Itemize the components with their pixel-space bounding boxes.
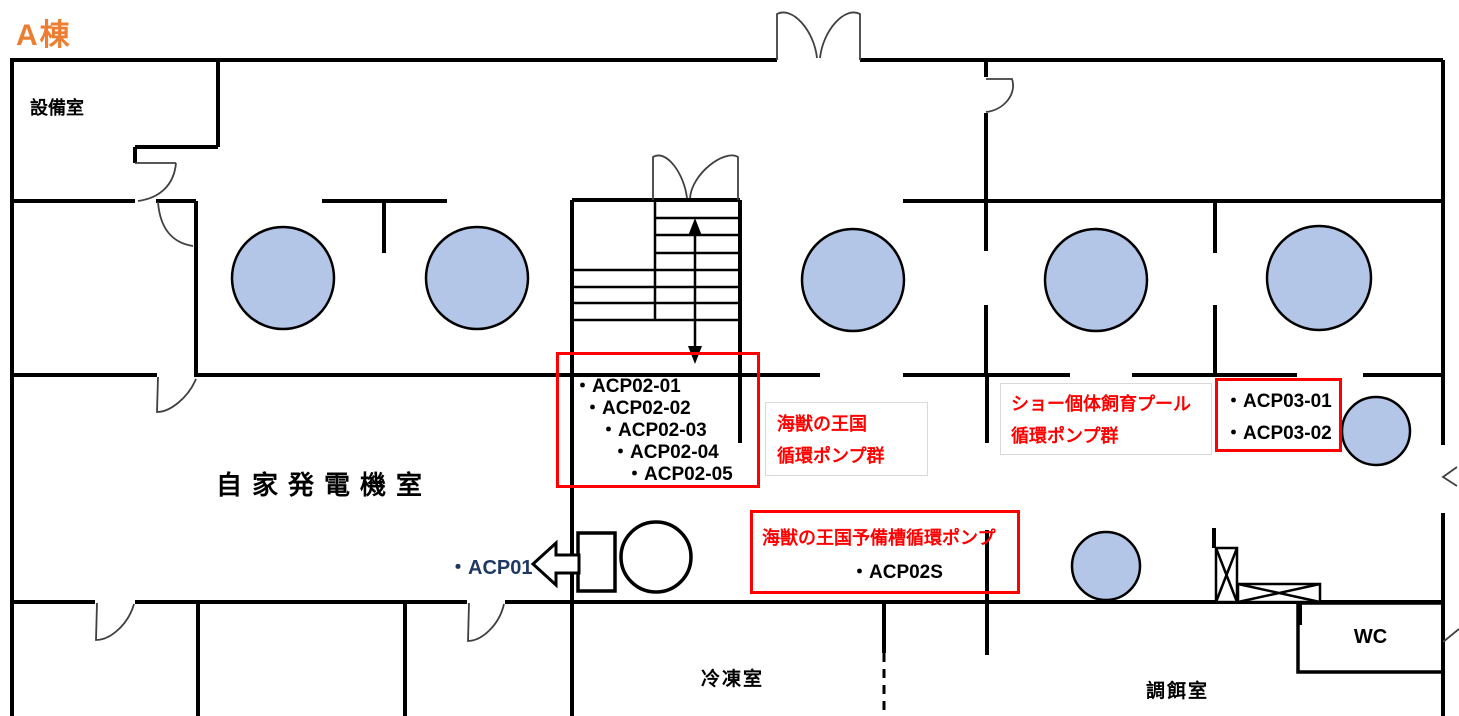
acp02-item: ・ACP02-03 [559, 420, 757, 442]
pool-circle-small-bottom [1072, 532, 1140, 600]
pool-circle-1 [232, 227, 334, 329]
pool-circle-3 [802, 229, 904, 331]
acp02s-highlight-box: 海獣の王国予備槽循環ポンプ ・ACP02S [750, 510, 1020, 594]
pool-circle-4 [1045, 229, 1147, 331]
door-wc-right [1443, 629, 1459, 642]
pump-circle [621, 522, 691, 592]
door-right-wall [1443, 467, 1457, 486]
reserve-pump-caption: 海獣の王国予備槽循環ポンプ [762, 524, 1017, 550]
pool-circle-5 [1267, 226, 1371, 330]
caption-line: 循環ポンプ群 [777, 440, 927, 472]
acp01-pump-symbol [533, 522, 691, 592]
door-bottom-left [96, 603, 134, 640]
staircase [572, 200, 740, 320]
double-door-stairs [653, 155, 738, 200]
stair-direction-arrow [688, 218, 702, 364]
pump-box [578, 533, 615, 591]
arrow-head-up [688, 218, 702, 236]
acp03-item: ・ACP03-01 [1224, 386, 1339, 418]
building-title: A棟 [16, 10, 72, 54]
door-equipment-room [135, 163, 176, 201]
acp02-item: ・ACP02-02 [559, 398, 757, 420]
show-pool-pump-caption-box: ショー個体飼育プール 循環ポンプ群 [1000, 383, 1212, 455]
acp02s-item: ・ACP02S [850, 557, 1017, 584]
acp02-item: ・ACP02-05 [559, 464, 757, 486]
acp01-label: ・ACP01 [448, 551, 532, 580]
room-label-freezer: 冷凍室 [701, 664, 764, 691]
door-generator-left [157, 377, 196, 412]
door-generator-top [158, 202, 193, 246]
door-upper-right [986, 79, 1013, 112]
acp02-item: ・ACP02-04 [559, 442, 757, 464]
door-bottom-mid [468, 603, 504, 641]
caption-line: 循環ポンプ群 [1011, 420, 1211, 452]
caption-line: 海獣の王国 [777, 408, 927, 440]
pool-circle-2 [426, 227, 528, 329]
room-label-equipment: 設備室 [30, 94, 84, 120]
room-label-generator: 自家発電機室 [216, 465, 432, 502]
acp03-highlight-box: ・ACP03-01 ・ACP03-02 [1215, 378, 1342, 452]
acp02-item: ・ACP02-01 [559, 376, 757, 398]
equipment-room-walls [135, 60, 218, 163]
double-door-top [777, 12, 860, 60]
acp02-highlight-box: ・ACP02-01 ・ACP02-02 ・ACP02-03 ・ACP02-04 … [556, 352, 760, 488]
acp03-item: ・ACP03-02 [1224, 418, 1339, 450]
kaijuu-pump-caption-box: 海獣の王国 循環ポンプ群 [765, 402, 928, 476]
floor-plan-building-a: A棟 設備室 自家発電機室 冷凍室 調餌室 WC ・ACP01 ・ACP02-0… [0, 0, 1459, 716]
shelf-symbols [1216, 548, 1320, 602]
room-label-feed-prep: 調餌室 [1146, 676, 1209, 703]
caption-line: ショー個体飼育プール [1011, 388, 1211, 420]
room-label-wc: WC [1298, 603, 1443, 672]
pool-circle-small-right [1342, 397, 1410, 465]
